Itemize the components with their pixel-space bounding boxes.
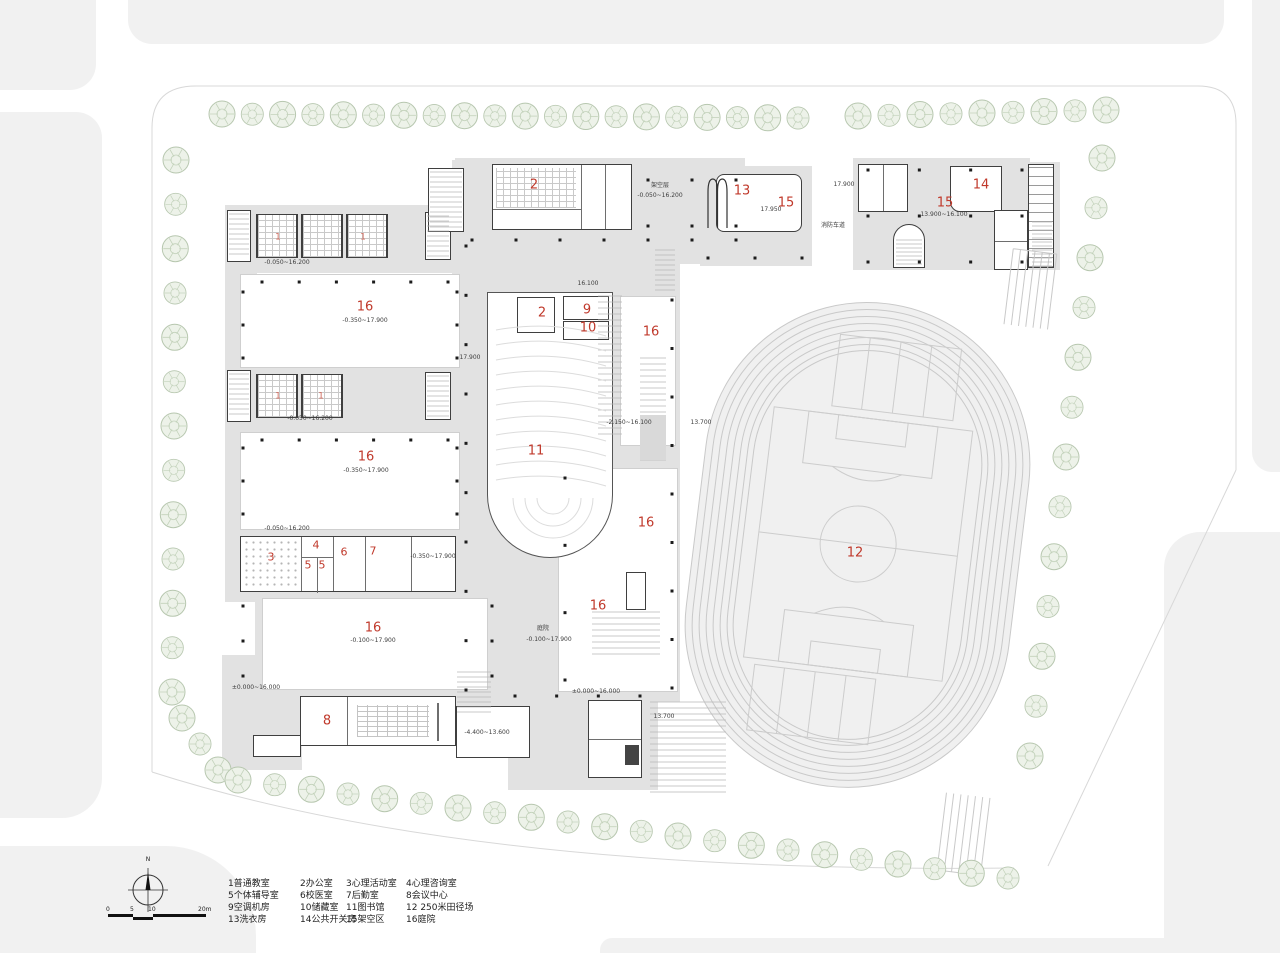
legend-item: 6校医室 (300, 888, 346, 900)
legend-item: 11图书馆 (346, 900, 406, 912)
elevation-label: -0.350~17.900 (410, 554, 455, 560)
scale-tick: 0 (106, 906, 110, 913)
legend-item: 5个体辅导室 (228, 888, 300, 900)
legend-item: 9空调机房 (228, 900, 300, 912)
scale-tick: 20m (198, 906, 211, 913)
room-label-1: 1 (275, 234, 281, 243)
site-plan-canvas: 1111223455678910111213141515161616161616… (0, 0, 1280, 953)
room-label-2: 2 (538, 307, 546, 320)
room-label-11: 11 (528, 445, 545, 458)
room-label-9: 9 (583, 304, 591, 317)
legend-item: 16庭院 (406, 912, 474, 924)
room-label-12: 12 (847, 547, 864, 560)
elevation-label: -0.100~17.900 (526, 637, 571, 643)
elevation-label: -0.050~16.200 (637, 193, 682, 199)
room-label-5: 5 (319, 560, 326, 571)
elevation-label: 13.700 (654, 714, 675, 720)
room-label-3: 3 (268, 552, 275, 563)
room-label-15: 15 (937, 197, 954, 210)
room-label-14: 14 (973, 179, 990, 192)
room-label-2: 2 (530, 179, 538, 192)
elevation-label: 庭院 (537, 626, 549, 632)
elevation-label: 17.950 (761, 207, 782, 213)
elevation-label: -0.350~17.900 (342, 318, 387, 324)
elevation-label: -0.050~16.200 (264, 526, 309, 532)
elevation-label: 13.700 (691, 420, 712, 426)
room-label-16: 16 (365, 622, 382, 635)
room-label-1: 1 (360, 234, 366, 243)
legend-item: 12 250米田径场 (406, 900, 474, 912)
scale-bar-segment (108, 914, 133, 917)
elevation-label: 17.900 (834, 182, 855, 188)
legend-item: 13洗衣房 (228, 912, 300, 924)
elevation-label: ±0.000~16.000 (232, 685, 280, 691)
room-label-16: 16 (590, 600, 607, 613)
room-label-16: 16 (638, 517, 655, 530)
elevation-label: 架空层 (651, 183, 669, 189)
room-label-16: 16 (358, 451, 375, 464)
legend-item: 3心理活动室 (346, 876, 406, 888)
elevation-label: -0.050~16.200 (287, 416, 332, 422)
room-label-1: 1 (318, 393, 324, 402)
elevation-label: 消防车道 (821, 223, 845, 229)
elevation-label: 13.900~16.100 (920, 212, 967, 218)
room-label-7: 7 (370, 546, 377, 557)
room-label-6: 6 (341, 547, 348, 558)
elevation-label: 17.900 (460, 355, 481, 361)
legend-item: 14公共开关房 (300, 912, 346, 924)
elevation-label: -0.350~17.900 (343, 468, 388, 474)
north-arrow: N (124, 858, 172, 914)
elevation-label: -2.150~16.100 (606, 420, 651, 426)
elevation-label: -0.050~16.200 (264, 260, 309, 266)
legend-item: 8会议中心 (406, 888, 474, 900)
legend-item: 15架空区 (346, 912, 406, 924)
legend-item: 7后勤室 (346, 888, 406, 900)
legend-item: 2办公室 (300, 876, 346, 888)
elevation-label: -4.400~13.600 (464, 730, 509, 736)
room-label-4: 4 (313, 540, 320, 551)
compass-icon (124, 858, 172, 914)
room-label-16: 16 (643, 326, 660, 339)
room-label-10: 10 (580, 322, 597, 335)
room-label-1: 1 (275, 393, 281, 402)
scale-bar-segment (133, 917, 153, 920)
legend-item: 10储藏室 (300, 900, 346, 912)
room-label-13: 13 (734, 185, 751, 198)
elevation-label: ±0.000~16.000 (572, 689, 620, 695)
legend-item: 4心理咨询室 (406, 876, 474, 888)
legend: 1普通教室2办公室3心理活动室4心理咨询室5个体辅导室6校医室7后勤室8会议中心… (228, 876, 474, 924)
room-label-5: 5 (305, 560, 312, 571)
legend-item: 1普通教室 (228, 876, 300, 888)
elevation-label: 16.100 (578, 281, 599, 287)
room-label-8: 8 (323, 715, 331, 728)
north-label: N (146, 856, 151, 863)
room-label-16: 16 (357, 301, 374, 314)
marker-layer: 1111223455678910111213141515161616161616… (0, 0, 1280, 953)
scale-bar-segment (153, 914, 206, 917)
elevation-label: -0.100~17.900 (350, 638, 395, 644)
